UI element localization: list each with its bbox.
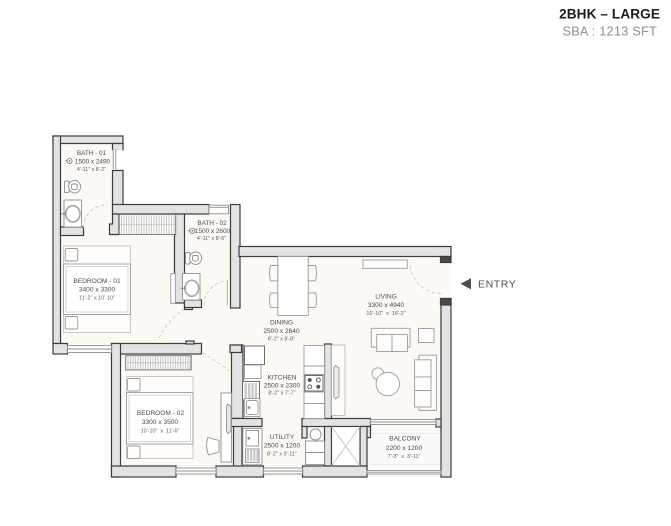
svg-text:2500 x 2640: 2500 x 2640 [263, 328, 300, 335]
svg-text:BATH - 02: BATH - 02 [197, 220, 227, 227]
svg-text:8'-2" x 7'-7": 8'-2" x 7'-7" [268, 391, 295, 397]
svg-text:8'-2" x 3'-11": 8'-2" x 3'-11" [267, 452, 297, 458]
svg-text:8'-2" x 8'-8": 8'-2" x 8'-8" [268, 337, 295, 343]
svg-text:2200 x 1200: 2200 x 1200 [386, 445, 423, 452]
svg-text:3400 x 3300: 3400 x 3300 [79, 287, 116, 294]
svg-text:2500 x 1200: 2500 x 1200 [264, 443, 301, 450]
svg-text:UTILITY: UTILITY [270, 434, 295, 441]
svg-text:7'-3" x 3'-11": 7'-3" x 3'-11" [388, 454, 421, 460]
svg-text:BALCONY: BALCONY [389, 435, 421, 442]
svg-text:4'-11" x 8'-6": 4'-11" x 8'-6" [197, 236, 226, 242]
svg-text:KITCHEN: KITCHEN [268, 374, 297, 381]
svg-text:4'-11" x 8'-2": 4'-11" x 8'-2" [77, 167, 106, 173]
svg-text:BEDROOM - 01: BEDROOM - 01 [73, 278, 121, 285]
svg-text:BEDROOM - 02: BEDROOM - 02 [137, 410, 185, 417]
svg-text:10'-10" x 16'-2": 10'-10" x 16'-2" [366, 311, 405, 317]
svg-text:DINING: DINING [270, 320, 293, 327]
svg-text:2500 x 2300: 2500 x 2300 [264, 382, 301, 389]
svg-text:11'-2" x 10'-10": 11'-2" x 10'-10" [79, 296, 115, 302]
svg-text:10'-10" x 11'-6": 10'-10" x 11'-6" [141, 429, 180, 435]
svg-text:2BHK – LARGE: 2BHK – LARGE [559, 6, 660, 21]
svg-text:1500 x 2600: 1500 x 2600 [195, 228, 231, 235]
svg-text:LIVING: LIVING [375, 294, 397, 301]
svg-text:SBA : 1213 SFT: SBA : 1213 SFT [562, 24, 657, 39]
svg-text:BATH - 01: BATH - 01 [77, 150, 107, 157]
svg-text:1500 x 2490: 1500 x 2490 [75, 159, 111, 166]
svg-text:3300 x 3500: 3300 x 3500 [142, 419, 179, 426]
svg-text:3300 x 4940: 3300 x 4940 [368, 302, 405, 309]
svg-text:ENTRY: ENTRY [478, 279, 516, 291]
